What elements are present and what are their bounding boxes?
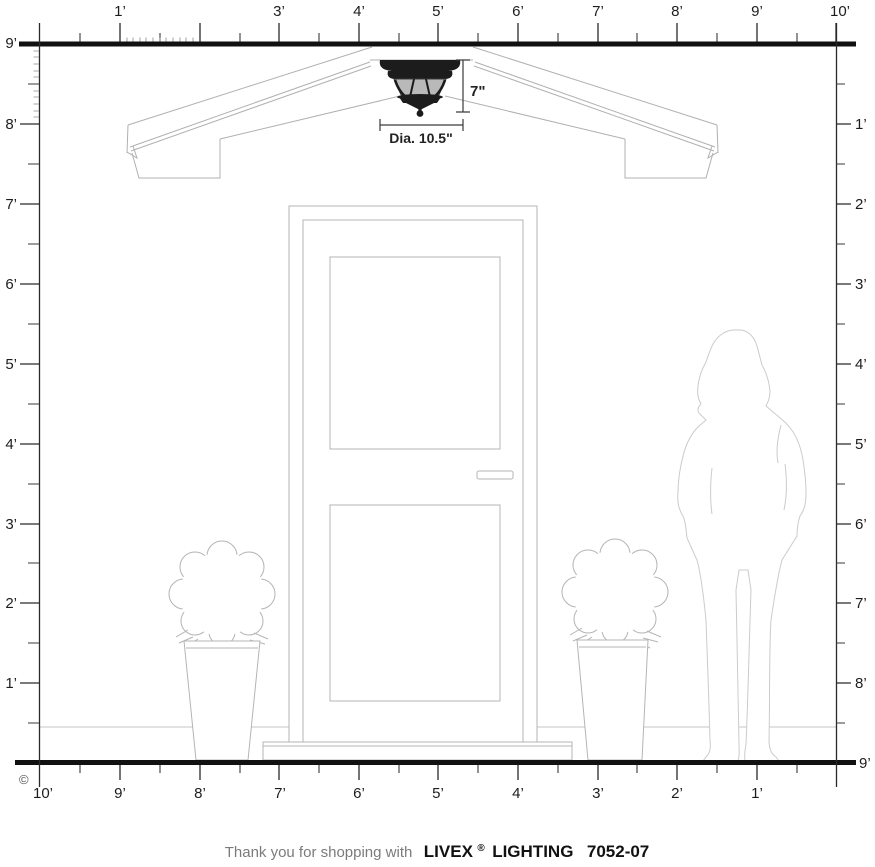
- right-ruler-label: 8’: [855, 675, 867, 692]
- bottom-ruler-label: 2’: [671, 785, 683, 802]
- footer-text: Thank you for shopping with LIVEX ® LIGH…: [225, 838, 650, 861]
- top-ruler-label: 8’: [671, 3, 683, 20]
- roof-left-soffit: [220, 96, 400, 139]
- right-ruler-label: 2’: [855, 196, 867, 213]
- brand-product-line: LIGHTING: [492, 842, 573, 861]
- bottom-ruler-label: 8’: [194, 785, 206, 802]
- footer-prefix: Thank you for shopping with: [225, 844, 413, 861]
- diameter-dimension: Dia. 10.5": [380, 119, 463, 146]
- bottom-ruler-label: 9’: [114, 785, 126, 802]
- copyright-symbol: ©: [19, 772, 29, 787]
- door-panel-bottom: [330, 505, 500, 701]
- front-door: [289, 206, 537, 742]
- top-ruler-label: 10’: [830, 3, 850, 20]
- left-ruler-labels: 9’ 8’ 7’ 6’ 5’ 4’ 3’ 2’ 1’: [5, 35, 17, 692]
- fixture-finial: [417, 110, 424, 117]
- bottom-ruler-labels: 10’ 9’ 8’ 7’ 6’ 5’ 4’ 3’ 2’ 1’: [33, 785, 763, 802]
- right-ruler-label: 3’: [855, 276, 867, 293]
- bottom-ruler-label: 5’: [432, 785, 444, 802]
- roof-right-soffit: [445, 96, 625, 139]
- fixture-band: [399, 97, 441, 103]
- bottom-ruler-label: 6’: [353, 785, 365, 802]
- planter-right: [577, 640, 648, 760]
- diameter-dimension-label: Dia. 10.5": [389, 130, 452, 146]
- left-ruler-half-ticks: [28, 84, 39, 723]
- scale-diagram: 7" Dia. 10.5" 1’ 3’ 4’: [0, 0, 875, 867]
- top-ruler-inch-ticks: [127, 38, 193, 42]
- roof-right-bracket: [625, 139, 713, 178]
- right-ruler-labels: 1’ 2’ 3’ 4’ 5’ 6’ 7’ 8’ 9’: [855, 116, 871, 772]
- door-step: [263, 742, 572, 760]
- bottom-ruler-label: 10’: [33, 785, 53, 802]
- bottom-ruler-label: 3’: [592, 785, 604, 802]
- registered-mark: ®: [477, 843, 485, 854]
- left-ruler-label: 8’: [5, 116, 17, 133]
- top-ruler-label: 9’: [751, 3, 763, 20]
- topiary-right-foliage: [562, 539, 668, 643]
- right-ruler-label: 1’: [855, 116, 867, 133]
- bottom-ruler-label: 4’: [512, 785, 524, 802]
- left-ruler-label: 3’: [5, 516, 17, 533]
- left-ruler-label: 9’: [5, 35, 17, 52]
- top-ruler-labels: 1’ 3’ 4’ 5’ 6’ 7’ 8’ 9’ 10’: [114, 3, 850, 20]
- left-ruler-label: 1’: [5, 675, 17, 692]
- top-ruler-label: 5’: [432, 3, 444, 20]
- right-ruler-label: 5’: [855, 436, 867, 453]
- right-ruler-half-ticks: [836, 84, 845, 723]
- right-ruler-label: 7’: [855, 595, 867, 612]
- right-ruler-label: 6’: [855, 516, 867, 533]
- top-ruler-label: 4’: [353, 3, 365, 20]
- top-ruler-label: 1’: [114, 3, 126, 20]
- brand-name: LIVEX: [424, 842, 474, 861]
- woman-silhouette: [678, 330, 806, 761]
- bottom-ruler-foot-ticks: [120, 765, 757, 780]
- fixture-canopy: [380, 60, 461, 71]
- model-number: 7052-07: [587, 842, 649, 861]
- roof-left-bracket: [132, 139, 220, 178]
- bottom-ruler-label: 1’: [751, 785, 763, 802]
- topiary-left-foliage: [169, 541, 275, 645]
- ceiling-light-fixture: [380, 60, 461, 117]
- door-panel-top: [330, 257, 500, 449]
- height-dimension-label: 7": [470, 83, 485, 100]
- planter-left: [184, 641, 260, 760]
- woman-outline: [678, 330, 806, 761]
- bottom-ruler-label: 7’: [274, 785, 286, 802]
- top-ruler-label: 7’: [592, 3, 604, 20]
- left-ruler-label: 7’: [5, 196, 17, 213]
- top-ruler-label: 6’: [512, 3, 524, 20]
- left-ruler-label: 5’: [5, 356, 17, 373]
- roof-left-slope: [127, 47, 400, 178]
- porch-scene: [40, 47, 836, 761]
- door-handle: [477, 471, 513, 479]
- top-ruler-label: 3’: [273, 3, 285, 20]
- roof-right-slope: [445, 47, 718, 178]
- left-ruler-label: 4’: [5, 436, 17, 453]
- diagram-canvas: 7" Dia. 10.5" 1’ 3’ 4’: [0, 0, 875, 867]
- fixture-canopy-tier: [388, 71, 453, 79]
- left-ruler-label: 2’: [5, 595, 17, 612]
- right-ruler-label: 9’: [859, 755, 871, 772]
- right-ruler-label: 4’: [855, 356, 867, 373]
- left-ruler-label: 6’: [5, 276, 17, 293]
